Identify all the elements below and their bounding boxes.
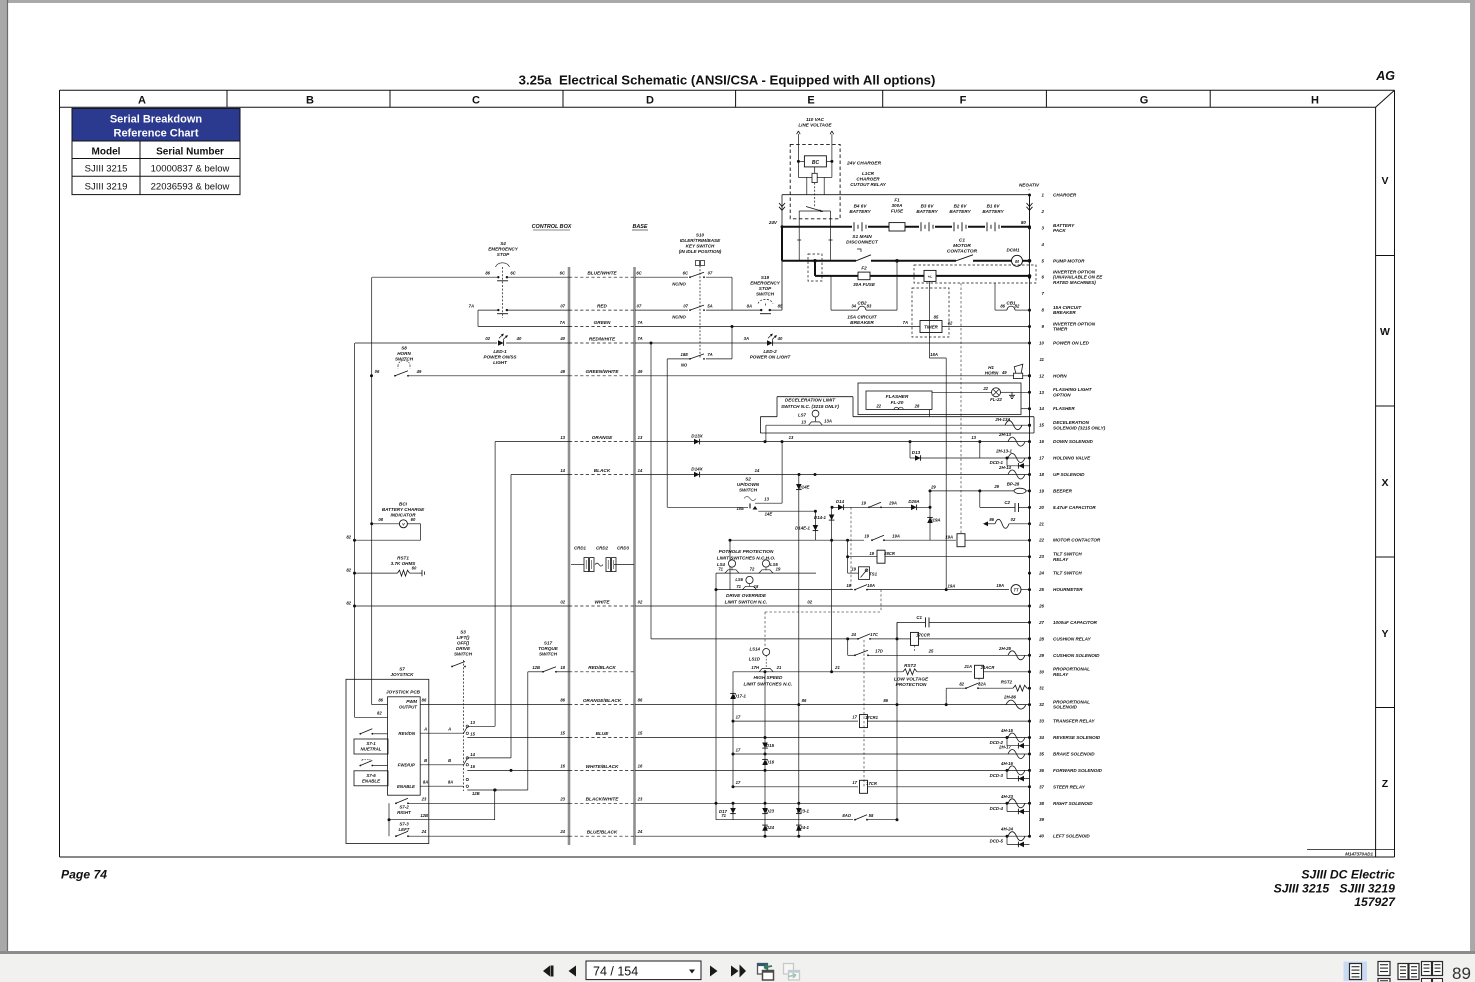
svg-text:4: 4 <box>1041 242 1045 247</box>
svg-text:2H-25: 2H-25 <box>998 646 1012 651</box>
svg-text:7A: 7A <box>903 320 908 325</box>
svg-text:B1 6V: B1 6V <box>987 204 1001 209</box>
svg-text:86: 86 <box>378 698 383 703</box>
svg-text:NC/NO: NC/NO <box>672 314 686 319</box>
svg-text:D16: D16 <box>766 760 775 765</box>
svg-text:02: 02 <box>807 599 812 604</box>
svg-text:D17: D17 <box>719 809 728 814</box>
svg-text:BATTERY: BATTERY <box>949 209 971 214</box>
svg-text:POWER ON LED: POWER ON LED <box>1053 341 1090 346</box>
svg-text:40: 40 <box>777 336 783 341</box>
svg-text:TRANSFER RELAY: TRANSFER RELAY <box>1053 719 1095 724</box>
svg-text:D13X: D13X <box>691 434 703 439</box>
svg-text:17: 17 <box>852 780 857 785</box>
svg-text:CONTROL BOX: CONTROL BOX <box>532 224 572 230</box>
svg-text:B: B <box>424 758 427 763</box>
svg-text:HOLDING VALVE: HOLDING VALVE <box>1053 456 1091 461</box>
svg-text:FL-22: FL-22 <box>990 397 1002 402</box>
svg-text:ORANGE: ORANGE <box>592 435 613 440</box>
svg-text:19: 19 <box>861 501 866 506</box>
svg-text:34: 34 <box>1039 735 1044 740</box>
svg-text:SWITCH: SWITCH <box>756 292 775 297</box>
svg-text:FORWARD SOLENOID: FORWARD SOLENOID <box>1053 768 1103 773</box>
svg-text:71: 71 <box>736 584 741 589</box>
svg-text:DCD-5: DCD-5 <box>990 839 1004 844</box>
svg-text:PUMP MOTOR: PUMP MOTOR <box>1053 258 1085 263</box>
svg-text:STOP: STOP <box>759 286 772 291</box>
svg-text:S7-2: S7-2 <box>399 805 409 810</box>
svg-text:OUTPUT: OUTPUT <box>399 705 417 710</box>
svg-text:58: 58 <box>869 813 874 818</box>
svg-text:02: 02 <box>948 321 953 326</box>
svg-text:2H-17: 2H-17 <box>998 745 1012 750</box>
svg-text:A: A <box>138 95 146 107</box>
svg-text:29: 29 <box>930 484 936 489</box>
svg-text:80: 80 <box>1021 220 1027 225</box>
svg-text:31: 31 <box>1039 686 1044 691</box>
svg-text:ENABLE: ENABLE <box>362 778 381 783</box>
svg-text:110 VAC: 110 VAC <box>806 117 825 122</box>
svg-text:86: 86 <box>883 698 888 703</box>
svg-text:13: 13 <box>971 435 976 440</box>
svg-text:17: 17 <box>1039 456 1044 461</box>
svg-text:S7-3: S7-3 <box>399 822 409 827</box>
svg-text:CONTACTOR: CONTACTOR <box>947 249 978 255</box>
svg-text:SWITCH: SWITCH <box>454 652 473 657</box>
svg-text:82: 82 <box>377 711 382 716</box>
svg-text:RELAY: RELAY <box>1053 672 1069 677</box>
svg-text:89: 89 <box>1452 964 1471 982</box>
svg-text:74 / 154: 74 / 154 <box>593 964 638 978</box>
svg-text:82A: 82A <box>978 682 986 687</box>
svg-text:LEFT: LEFT <box>399 827 410 832</box>
svg-text:49: 49 <box>559 369 565 374</box>
svg-text:B: B <box>306 95 314 107</box>
svg-text:F1: F1 <box>894 198 900 203</box>
svg-text:18: 18 <box>1039 472 1044 477</box>
svg-text:06: 06 <box>375 369 380 374</box>
svg-text:02: 02 <box>638 599 643 604</box>
svg-text:DRIVE: DRIVE <box>456 646 471 651</box>
svg-text:S2: S2 <box>745 477 751 482</box>
svg-text:Serial Breakdown: Serial Breakdown <box>110 114 203 126</box>
svg-text:LS1D: LS1D <box>749 656 761 661</box>
svg-text:18: 18 <box>754 584 759 589</box>
svg-text:POTHOLE PROTECTION: POTHOLE PROTECTION <box>719 549 774 554</box>
svg-text:157927: 157927 <box>1354 895 1396 909</box>
svg-text:7A: 7A <box>469 303 474 308</box>
svg-text:21A: 21A <box>963 664 972 669</box>
svg-text:19A: 19A <box>996 583 1004 588</box>
svg-text:E: E <box>807 95 814 107</box>
svg-text:BREAKER: BREAKER <box>850 320 874 326</box>
svg-text:8A: 8A <box>747 303 752 308</box>
svg-text:LED-1: LED-1 <box>493 349 507 354</box>
svg-text:21: 21 <box>834 665 840 670</box>
svg-text:B3 6V: B3 6V <box>921 204 935 209</box>
svg-text:SJIII 3219: SJIII 3219 <box>85 181 128 192</box>
svg-text:17D: 17D <box>875 649 883 654</box>
svg-text:JOYSTICK: JOYSTICK <box>391 672 415 677</box>
svg-text:24V CHARGER: 24V CHARGER <box>846 161 882 167</box>
svg-text:Model: Model <box>92 146 121 157</box>
svg-text:BATTERY: BATTERY <box>982 209 1004 214</box>
svg-text:19: 19 <box>776 567 781 572</box>
svg-text:24: 24 <box>559 829 565 834</box>
svg-text:CHARGER: CHARGER <box>1053 193 1077 198</box>
svg-text:2H-14: 2H-14 <box>998 465 1012 470</box>
svg-text:MOTOR: MOTOR <box>953 243 971 249</box>
svg-text:WHITE: WHITE <box>594 599 610 604</box>
svg-text:SWITCH N.C. (3215 ONLY): SWITCH N.C. (3215 ONLY) <box>781 404 839 409</box>
svg-text:ENABLE: ENABLE <box>397 784 416 789</box>
svg-text:72: 72 <box>750 567 755 572</box>
svg-text:18E: 18E <box>681 352 689 357</box>
svg-text:LIMIT SWITCHES N.C.: LIMIT SWITCHES N.C. <box>744 682 793 687</box>
svg-text:17CR: 17CR <box>866 781 877 786</box>
svg-text:KEY SWITCH: KEY SWITCH <box>686 244 715 249</box>
svg-text:29: 29 <box>1038 653 1044 658</box>
svg-text:BLACK/WHITE: BLACK/WHITE <box>586 797 620 802</box>
svg-text:BATTERY: BATTERY <box>849 209 871 214</box>
svg-text:Z: Z <box>1382 778 1389 790</box>
svg-text:28CR: 28CR <box>883 551 895 556</box>
svg-text:HORN: HORN <box>397 351 411 356</box>
svg-text:H1: H1 <box>988 365 994 370</box>
svg-text:NC/NO: NC/NO <box>672 282 686 287</box>
svg-text:L1CR: L1CR <box>862 171 875 176</box>
svg-text:07: 07 <box>637 303 642 308</box>
svg-text:38: 38 <box>1039 801 1044 806</box>
svg-text:FUSE: FUSE <box>891 209 904 214</box>
svg-text:13: 13 <box>801 419 806 424</box>
svg-text:29: 29 <box>993 484 999 489</box>
svg-text:CRD2: CRD2 <box>596 546 609 551</box>
svg-text:7A: 7A <box>560 320 565 325</box>
svg-text:19A: 19A <box>892 534 900 539</box>
svg-text:07: 07 <box>708 271 713 276</box>
svg-text:21: 21 <box>1038 521 1044 526</box>
svg-text:LIMIT SWITCH N.C.: LIMIT SWITCH N.C. <box>725 600 768 605</box>
svg-text:8A: 8A <box>448 780 453 785</box>
svg-text:3.25a Electrical Schematic (A: 3.25a Electrical Schematic (ANSI/CSA - E… <box>519 73 936 88</box>
svg-text:BATTERY: BATTERY <box>916 209 938 214</box>
svg-text:18: 18 <box>560 665 565 670</box>
svg-text:NUETRAL: NUETRAL <box>361 747 382 752</box>
svg-text:23: 23 <box>637 796 643 801</box>
svg-text:28: 28 <box>914 404 920 409</box>
svg-text:15A CIRCUIT: 15A CIRCUIT <box>847 315 877 321</box>
svg-text:17: 17 <box>736 780 741 785</box>
svg-text:C: C <box>472 95 480 107</box>
svg-text:49: 49 <box>637 369 643 374</box>
svg-text:CUSHION SOLENOID: CUSHION SOLENOID <box>1053 653 1100 658</box>
svg-text:C1: C1 <box>959 238 965 244</box>
svg-text:UP SOLENOID: UP SOLENOID <box>1053 472 1085 477</box>
svg-text:17CCR: 17CCR <box>916 632 930 637</box>
svg-text:13: 13 <box>789 435 794 440</box>
svg-text:DRIVE OVERRIDE: DRIVE OVERRIDE <box>726 593 767 598</box>
svg-text:16: 16 <box>560 763 565 768</box>
svg-text:ORANGE/BLACK: ORANGE/BLACK <box>583 698 622 703</box>
svg-text:27: 27 <box>1038 620 1044 625</box>
svg-text:CRD3: CRD3 <box>617 546 630 551</box>
svg-text:17H: 17H <box>751 665 760 670</box>
svg-text:HORN: HORN <box>985 370 999 375</box>
svg-text:CHARGER: CHARGER <box>856 177 880 182</box>
svg-text:B2 6V: B2 6V <box>954 204 968 209</box>
svg-text:TORQUE: TORQUE <box>538 646 559 651</box>
svg-text:W: W <box>1380 326 1390 338</box>
svg-text:22: 22 <box>1038 538 1044 543</box>
svg-text:D29A: D29A <box>908 499 919 504</box>
svg-text:WHITE/BLACK: WHITE/BLACK <box>586 764 619 769</box>
svg-text:AG: AG <box>1375 69 1395 83</box>
svg-text:STEER RELAY: STEER RELAY <box>1053 784 1086 789</box>
svg-text:40: 40 <box>559 336 565 341</box>
svg-text:POWER ON LIGHT: POWER ON LIGHT <box>750 355 792 360</box>
svg-text:RIGHT: RIGHT <box>397 810 411 815</box>
svg-text:11: 11 <box>1039 357 1044 362</box>
svg-text:13: 13 <box>764 496 769 501</box>
svg-text:IDLER/TRIM/BASE: IDLER/TRIM/BASE <box>680 238 721 243</box>
svg-text:02: 02 <box>560 599 565 604</box>
svg-text:GREEN: GREEN <box>594 320 611 325</box>
svg-text:TILT SWITCH: TILT SWITCH <box>1053 571 1082 576</box>
svg-text:CUTOUT RELAY: CUTOUT RELAY <box>850 182 886 187</box>
svg-text:UP/DOWN: UP/DOWN <box>737 482 760 487</box>
svg-text:60: 60 <box>411 517 416 522</box>
svg-text:FL-20: FL-20 <box>891 400 904 406</box>
svg-text:F: F <box>960 95 967 107</box>
svg-text:FLASHER: FLASHER <box>886 394 909 400</box>
svg-text:13: 13 <box>638 435 643 440</box>
svg-text:23: 23 <box>1038 554 1044 559</box>
svg-text:15: 15 <box>470 731 475 736</box>
svg-text:S3: S3 <box>460 630 466 635</box>
svg-text:PACK: PACK <box>1053 228 1066 233</box>
svg-text:26: 26 <box>1038 604 1044 609</box>
svg-text:D: D <box>646 95 654 107</box>
svg-text:S8: S8 <box>401 346 407 351</box>
svg-text:FLASHER: FLASHER <box>1053 406 1075 411</box>
svg-text:60: 60 <box>412 566 417 571</box>
svg-text:BLUE: BLUE <box>596 731 610 736</box>
svg-text:2H-86: 2H-86 <box>1003 694 1017 699</box>
svg-text:19: 19 <box>851 567 856 572</box>
svg-text:MOTOR CONTACTOR: MOTOR CONTACTOR <box>1053 538 1101 543</box>
svg-text:13A: 13A <box>824 419 832 424</box>
svg-text:14: 14 <box>638 468 643 473</box>
svg-text:24: 24 <box>850 632 856 637</box>
svg-text:NO: NO <box>681 363 688 368</box>
svg-text:15: 15 <box>1039 423 1044 428</box>
svg-text:07: 07 <box>683 303 688 308</box>
svg-text:17CR1: 17CR1 <box>865 715 879 720</box>
svg-text:85: 85 <box>934 315 939 320</box>
svg-text:Reference Chart: Reference Chart <box>114 128 199 140</box>
svg-text:2H-13A: 2H-13A <box>994 417 1010 422</box>
svg-text:86: 86 <box>1000 304 1005 309</box>
svg-text:14: 14 <box>470 752 475 757</box>
svg-text:RST1: RST1 <box>397 556 409 561</box>
svg-text:10: 10 <box>1039 341 1044 346</box>
svg-text:BRAKE SOLENOID: BRAKE SOLENOID <box>1053 752 1095 757</box>
svg-text:19A: 19A <box>948 583 956 588</box>
svg-text:18A: 18A <box>930 352 938 357</box>
svg-text:300A: 300A <box>892 203 903 208</box>
svg-text:40: 40 <box>1038 834 1044 839</box>
svg-text:TIMER: TIMER <box>924 325 938 330</box>
svg-text:4H-23: 4H-23 <box>1000 794 1014 799</box>
svg-text:RST2: RST2 <box>904 663 916 668</box>
svg-text:TS1: TS1 <box>869 572 878 577</box>
svg-text:8.47uF CAPACITOR: 8.47uF CAPACITOR <box>1053 505 1096 510</box>
svg-text:RST2: RST2 <box>1001 680 1013 685</box>
svg-text:24: 24 <box>1038 571 1044 576</box>
svg-text:HOURMETER: HOURMETER <box>1053 587 1083 592</box>
svg-text:S19: S19 <box>761 275 770 280</box>
svg-text:17: 17 <box>852 714 857 719</box>
svg-text:RED: RED <box>597 304 608 309</box>
svg-text:23: 23 <box>559 796 565 801</box>
svg-text:STOP: STOP <box>497 252 510 257</box>
svg-text:82: 82 <box>346 568 351 573</box>
svg-text:SJIII 3215: SJIII 3215 <box>85 163 128 174</box>
svg-text:BATTERY CHARGE: BATTERY CHARGE <box>382 507 425 512</box>
svg-text:SOLENOID (3215 ONLY): SOLENOID (3215 ONLY) <box>1053 425 1106 430</box>
svg-text:V: V <box>1381 175 1388 187</box>
svg-text:S7: S7 <box>399 667 405 672</box>
svg-text:REV/DN: REV/DN <box>398 731 415 736</box>
svg-text:BLUE/WHITE: BLUE/WHITE <box>587 271 617 276</box>
svg-text:BREAKER: BREAKER <box>1053 310 1076 315</box>
svg-text:BC: BC <box>812 160 820 166</box>
svg-text:POWER ON/SS: POWER ON/SS <box>484 355 518 360</box>
svg-text:S10: S10 <box>696 233 705 238</box>
svg-text:CRD1: CRD1 <box>574 546 587 551</box>
svg-text:D14E-1: D14E-1 <box>795 526 810 531</box>
svg-text:02: 02 <box>1011 517 1016 522</box>
svg-text:D24-1: D24-1 <box>797 825 810 830</box>
svg-text:24: 24 <box>421 829 427 834</box>
svg-text:SOLENOID: SOLENOID <box>1053 705 1078 710</box>
svg-text:30: 30 <box>1039 669 1044 674</box>
svg-text:RATED MACHINES): RATED MACHINES) <box>1053 280 1096 285</box>
svg-text:D24: D24 <box>766 825 775 830</box>
svg-text:LS7: LS7 <box>798 413 807 418</box>
svg-text:82: 82 <box>1015 304 1020 309</box>
svg-text:D19A: D19A <box>929 518 940 523</box>
svg-text:8A: 8A <box>423 780 428 785</box>
svg-text:2: 2 <box>1041 209 1045 214</box>
svg-text:16: 16 <box>638 763 643 768</box>
svg-text:24V: 24V <box>768 220 778 225</box>
svg-text:DECELERATION LIMIT: DECELERATION LIMIT <box>785 398 836 403</box>
svg-text:V: V <box>402 522 405 527</box>
svg-text:49: 49 <box>1001 370 1007 375</box>
svg-text:14: 14 <box>560 468 565 473</box>
svg-text:B4 6V: B4 6V <box>854 204 868 209</box>
svg-text:49: 49 <box>416 369 422 374</box>
svg-text:D14X: D14X <box>691 466 703 471</box>
svg-text:F2: F2 <box>861 266 867 271</box>
svg-text:86: 86 <box>560 698 565 703</box>
svg-text:DCD-3: DCD-3 <box>990 773 1004 778</box>
svg-text:36: 36 <box>1039 768 1044 773</box>
svg-text:B: B <box>448 758 451 763</box>
svg-text:33: 33 <box>1039 719 1044 724</box>
svg-text:Y: Y <box>1381 628 1388 640</box>
svg-text:20: 20 <box>1038 505 1044 510</box>
svg-text:22036593 & below: 22036593 & below <box>151 181 230 192</box>
svg-text:BLACK: BLACK <box>594 468 611 473</box>
svg-text:RIGHT SOLENOID: RIGHT SOLENOID <box>1053 801 1093 806</box>
svg-text:RED/BLACK: RED/BLACK <box>588 665 616 670</box>
svg-text:M147370AD1: M147370AD1 <box>1345 852 1373 857</box>
svg-text:1000uF CAPACITOR: 1000uF CAPACITOR <box>1053 620 1098 625</box>
svg-text:22: 22 <box>982 386 988 391</box>
svg-text:4H-16: 4H-16 <box>1000 761 1014 766</box>
svg-text:4H-15: 4H-15 <box>1000 728 1014 733</box>
svg-text:DCD-4: DCD-4 <box>990 806 1004 811</box>
svg-text:86: 86 <box>485 271 490 276</box>
svg-text:16: 16 <box>470 764 475 769</box>
svg-text:82: 82 <box>959 682 964 687</box>
svg-text:13: 13 <box>1039 390 1044 395</box>
svg-text:25: 25 <box>1038 587 1044 592</box>
svg-text:2H-13-1: 2H-13-1 <box>995 449 1012 454</box>
svg-text:17: 17 <box>736 747 741 752</box>
svg-text:24: 24 <box>637 829 643 834</box>
svg-text:19: 19 <box>869 551 874 556</box>
svg-text:HORN: HORN <box>1053 373 1067 378</box>
svg-text:4H-24: 4H-24 <box>1000 827 1014 832</box>
svg-text:83: 83 <box>867 304 872 309</box>
svg-text:71: 71 <box>718 567 723 572</box>
svg-text:OFF(): OFF() <box>457 641 470 646</box>
svg-text:BP-28: BP-28 <box>1007 481 1020 486</box>
svg-text:A: A <box>447 727 451 732</box>
svg-text:BCI: BCI <box>399 502 408 507</box>
svg-text:21ACR: 21ACR <box>980 665 995 670</box>
svg-text:JOYSTICK PCB: JOYSTICK PCB <box>386 690 421 695</box>
svg-text:BEEPER: BEEPER <box>1053 488 1073 493</box>
svg-text:Page 74: Page 74 <box>61 868 107 882</box>
svg-text:+/-: +/- <box>928 275 933 279</box>
svg-text:86: 86 <box>989 517 994 522</box>
svg-text:D23-1: D23-1 <box>797 809 810 814</box>
svg-text:16: 16 <box>1039 439 1044 444</box>
svg-text:13: 13 <box>560 435 565 440</box>
svg-text:RELAY: RELAY <box>1053 557 1069 562</box>
svg-text:7A: 7A <box>637 320 642 325</box>
svg-text:37: 37 <box>1039 784 1044 789</box>
svg-text:LS14: LS14 <box>750 647 761 652</box>
svg-text:LEFT SOLENOID: LEFT SOLENOID <box>1053 834 1090 839</box>
svg-text:HIGH SPEED: HIGH SPEED <box>754 675 784 680</box>
svg-text:23: 23 <box>421 796 427 801</box>
svg-text:TT: TT <box>1013 588 1019 593</box>
svg-text:LIGHT: LIGHT <box>493 360 508 365</box>
svg-text:32: 32 <box>1039 702 1044 707</box>
svg-text:07: 07 <box>560 303 565 308</box>
svg-text:8AO: 8AO <box>842 813 851 818</box>
svg-text:82: 82 <box>346 535 351 540</box>
svg-text:D14E: D14E <box>799 485 811 490</box>
svg-text:14E: 14E <box>765 512 773 517</box>
svg-text:DCM1: DCM1 <box>1006 248 1019 253</box>
